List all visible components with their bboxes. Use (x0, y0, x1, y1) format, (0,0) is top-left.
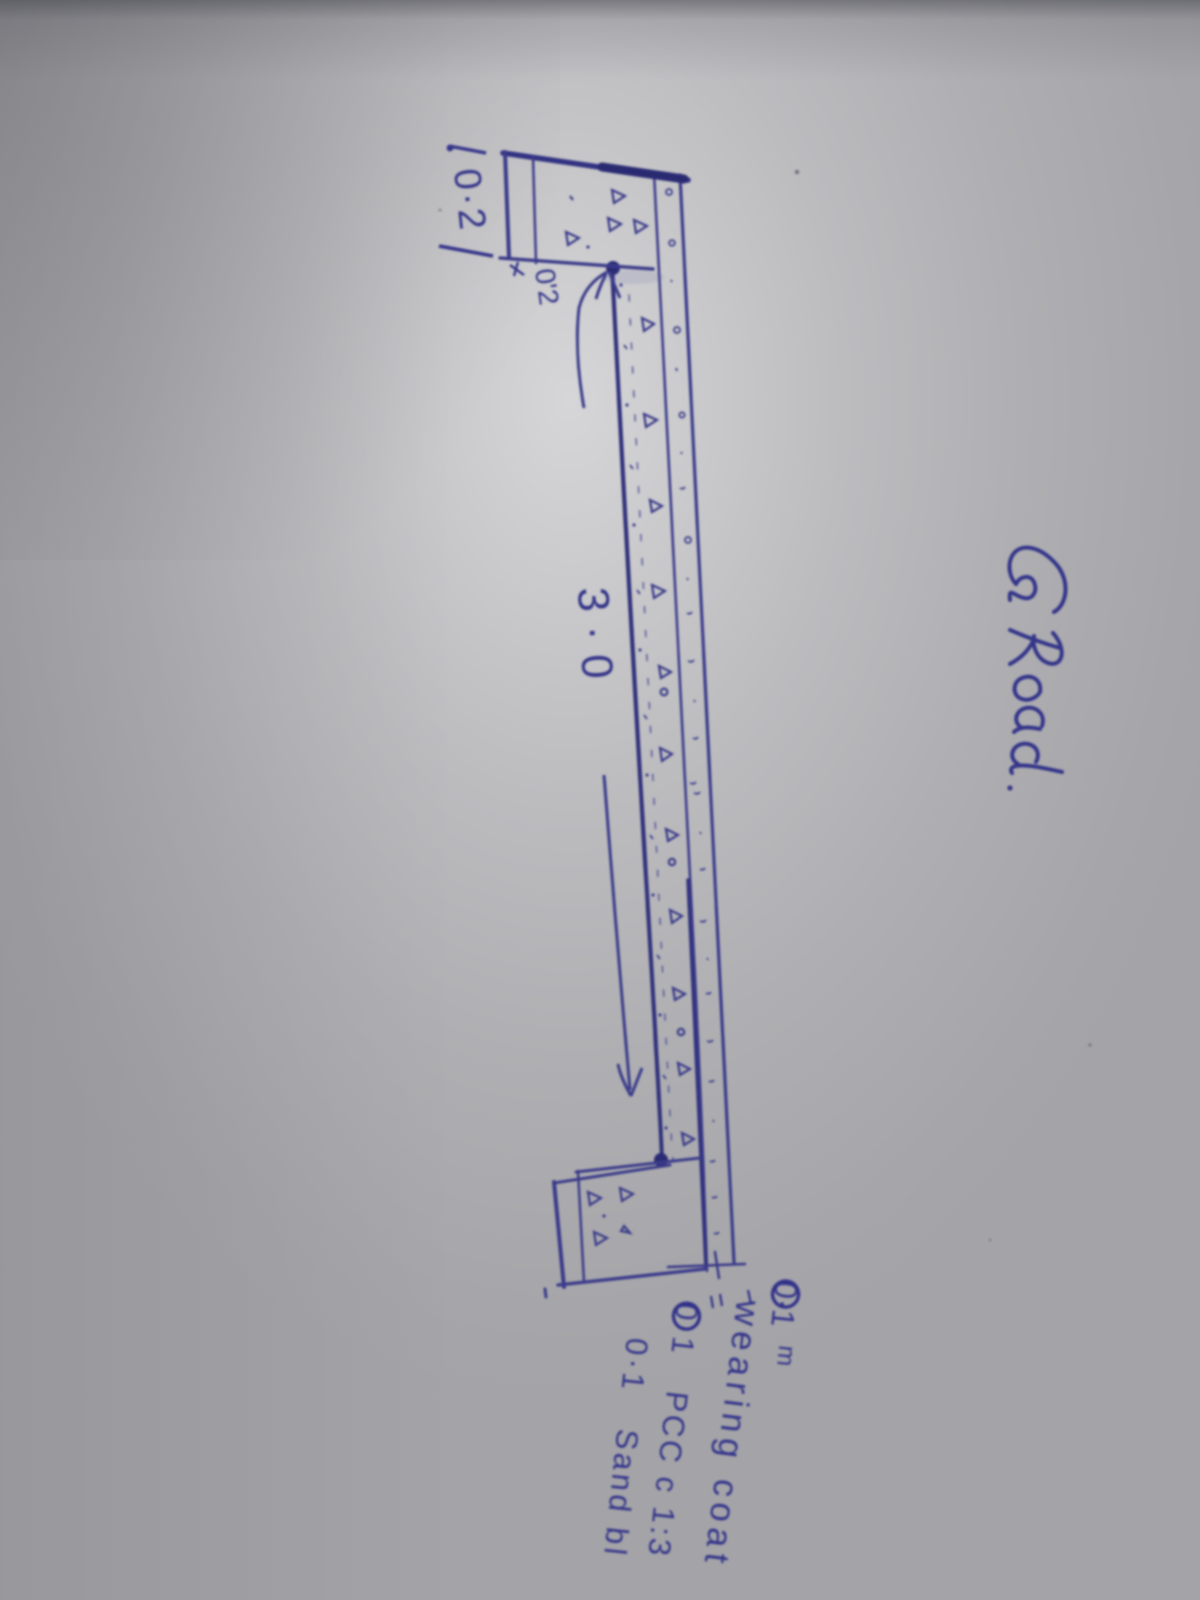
svg-text:3·0: 3·0 (568, 586, 622, 694)
svg-text:0·1: 0·1 (764, 1279, 805, 1329)
svg-text:0'2: 0'2 (529, 267, 565, 307)
svg-text:0·2: 0·2 (445, 167, 493, 235)
svg-text:m: m (771, 1344, 801, 1368)
